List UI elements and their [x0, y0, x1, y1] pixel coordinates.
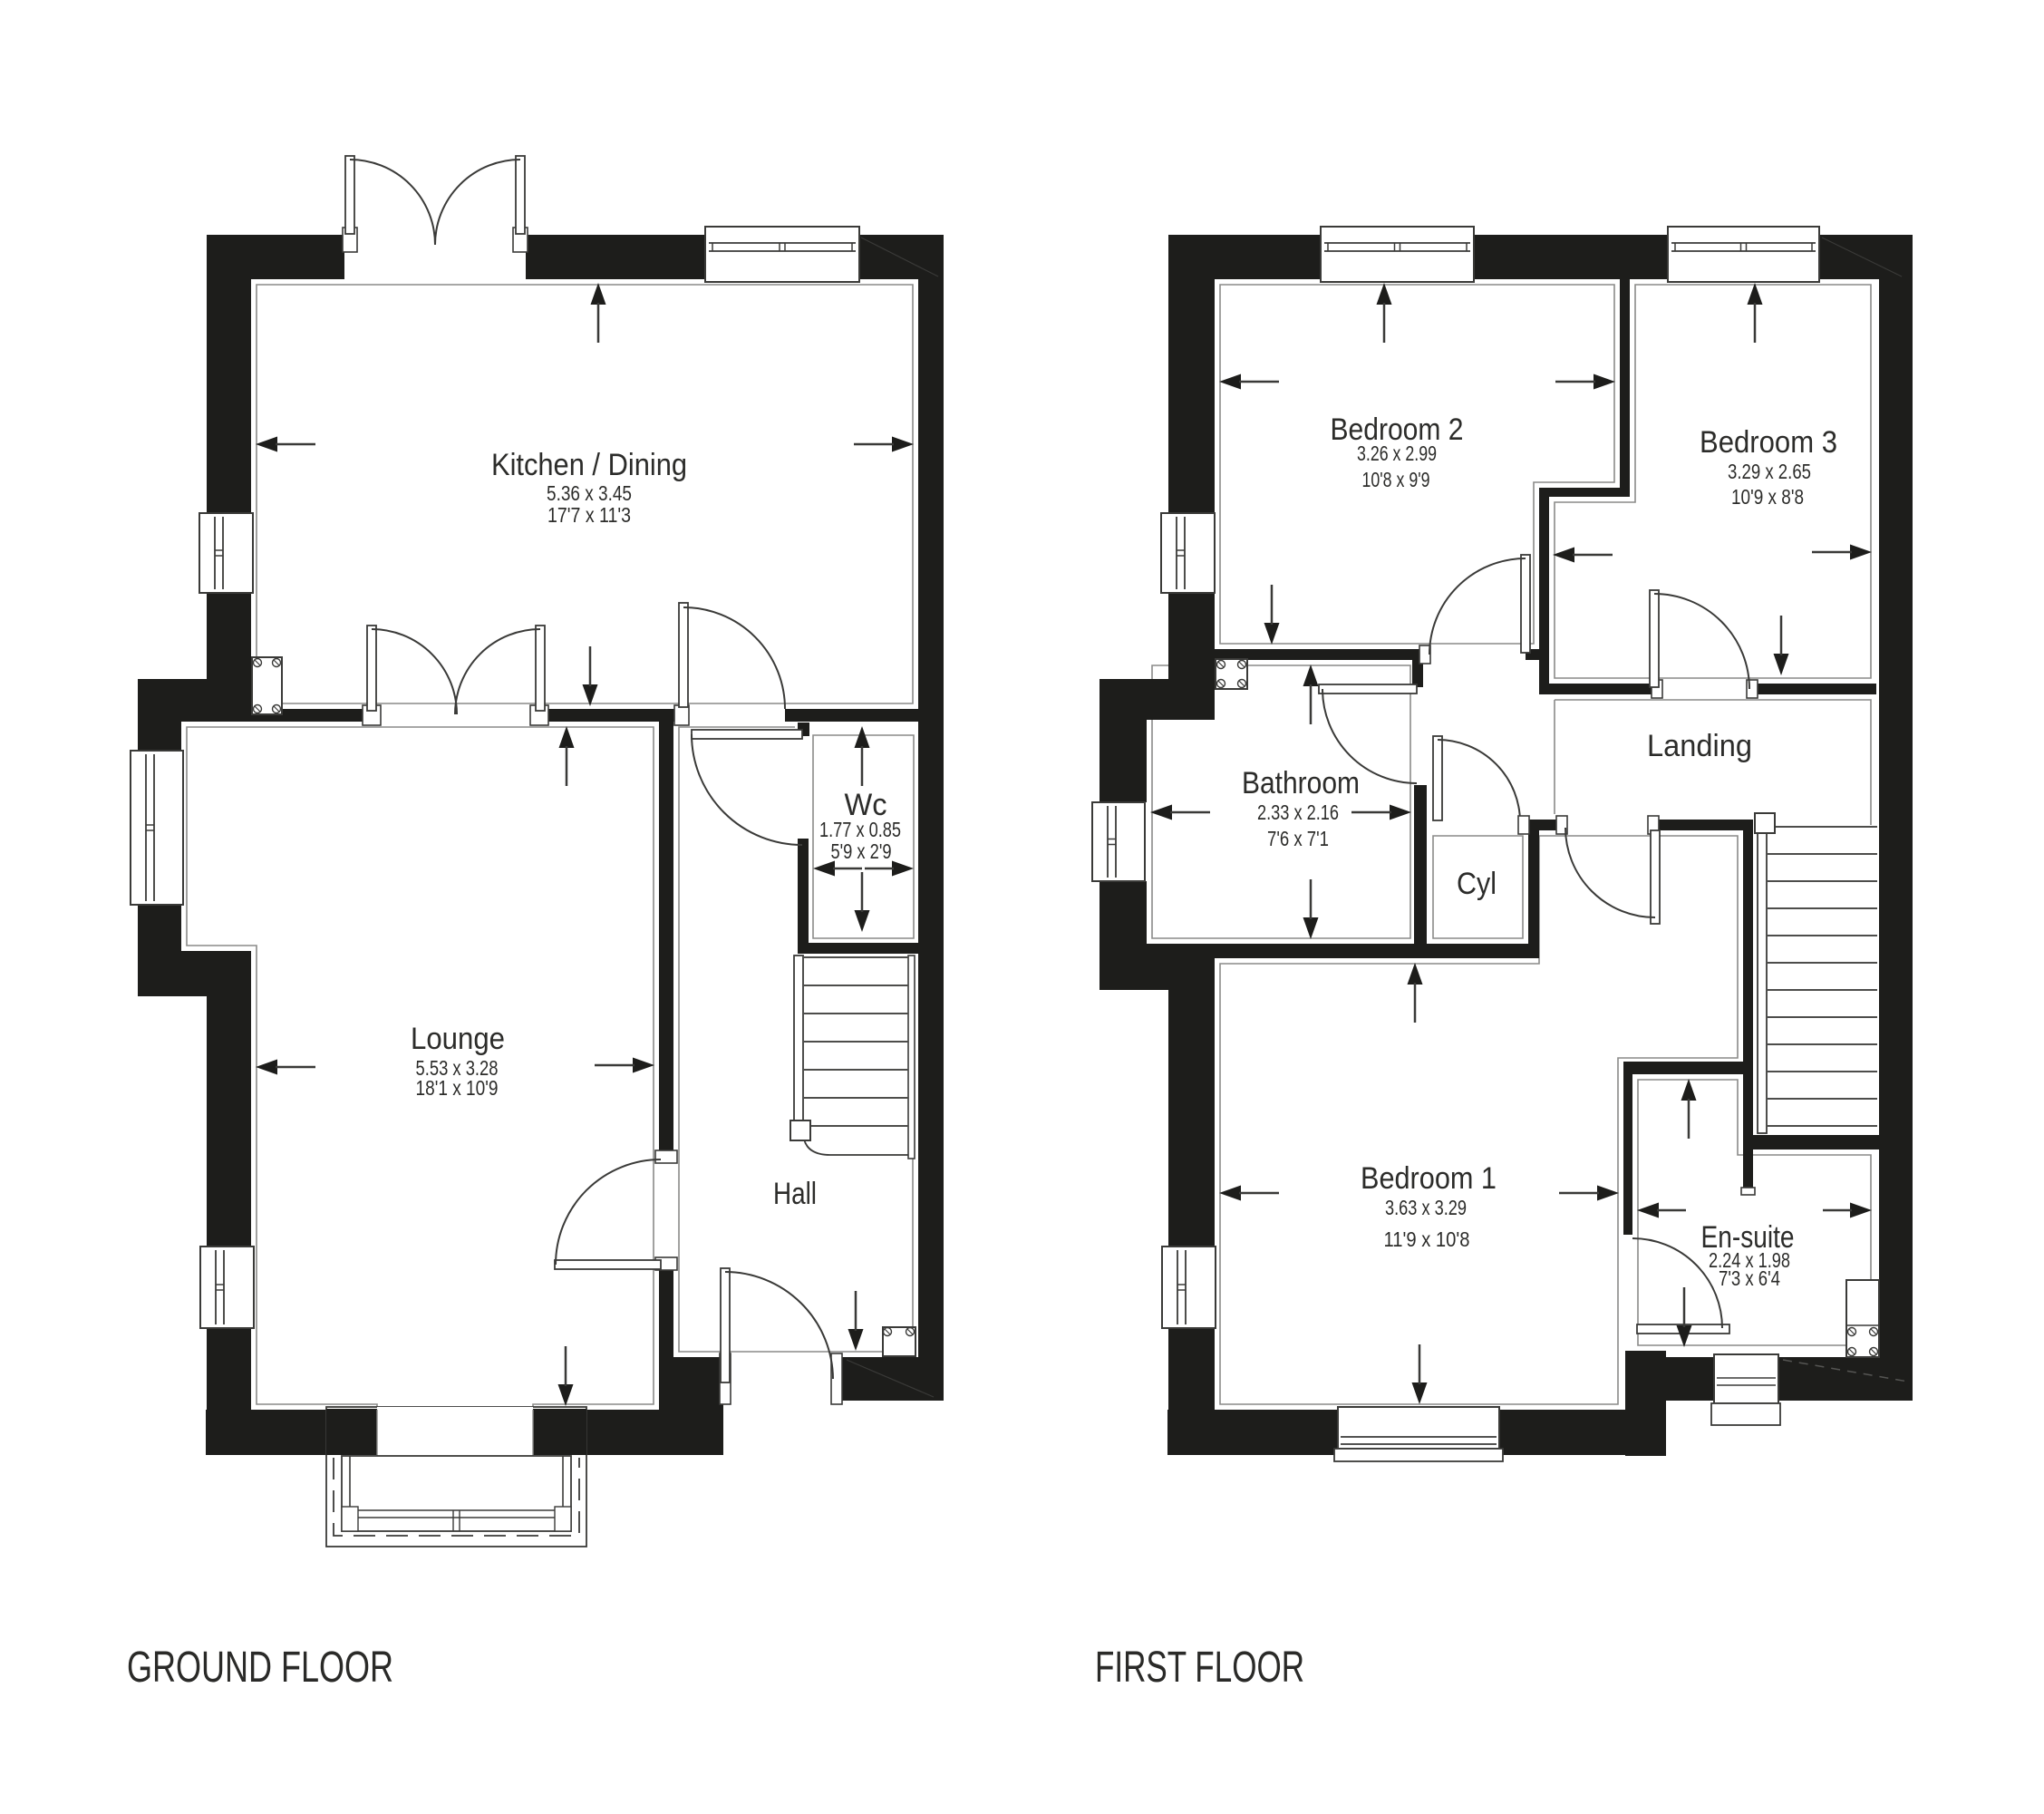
svg-text:FIRST FLOOR: FIRST FLOOR — [1095, 1644, 1304, 1692]
svg-text:3.63 x 3.29: 3.63 x 3.29 — [1385, 1196, 1467, 1219]
svg-text:10'8 x 9'9: 10'8 x 9'9 — [1362, 468, 1430, 491]
svg-text:10'9 x 8'8: 10'9 x 8'8 — [1731, 485, 1804, 509]
svg-text:1.77 x 0.85: 1.77 x 0.85 — [819, 818, 901, 841]
svg-text:2.33 x 2.16: 2.33 x 2.16 — [1257, 800, 1339, 824]
svg-text:3.29 x 2.65: 3.29 x 2.65 — [1728, 460, 1811, 483]
svg-text:Hall: Hall — [773, 1177, 817, 1211]
svg-text:3.26 x 2.99: 3.26 x 2.99 — [1357, 441, 1437, 465]
svg-text:7'3 x 6'4: 7'3 x 6'4 — [1719, 1266, 1780, 1290]
svg-text:Landing: Landing — [1647, 729, 1752, 763]
svg-text:Bathroom: Bathroom — [1242, 766, 1360, 800]
svg-text:5'9 x 2'9: 5'9 x 2'9 — [831, 839, 892, 863]
svg-text:Bedroom 3: Bedroom 3 — [1700, 425, 1837, 460]
svg-text:7'6 x 7'1: 7'6 x 7'1 — [1267, 827, 1329, 850]
svg-text:Kitchen / Dining: Kitchen / Dining — [491, 448, 687, 482]
svg-text:11'9 x 10'8: 11'9 x 10'8 — [1384, 1227, 1470, 1251]
svg-text:17'7 x 11'3: 17'7 x 11'3 — [547, 503, 631, 527]
svg-text:5.36 x 3.45: 5.36 x 3.45 — [547, 481, 632, 505]
svg-text:GROUND FLOOR: GROUND FLOOR — [127, 1644, 393, 1692]
svg-text:18'1 x 10'9: 18'1 x 10'9 — [416, 1076, 499, 1100]
svg-text:Lounge: Lounge — [411, 1022, 505, 1056]
svg-text:Bedroom 1: Bedroom 1 — [1361, 1161, 1497, 1196]
svg-text:Cyl: Cyl — [1457, 867, 1497, 901]
